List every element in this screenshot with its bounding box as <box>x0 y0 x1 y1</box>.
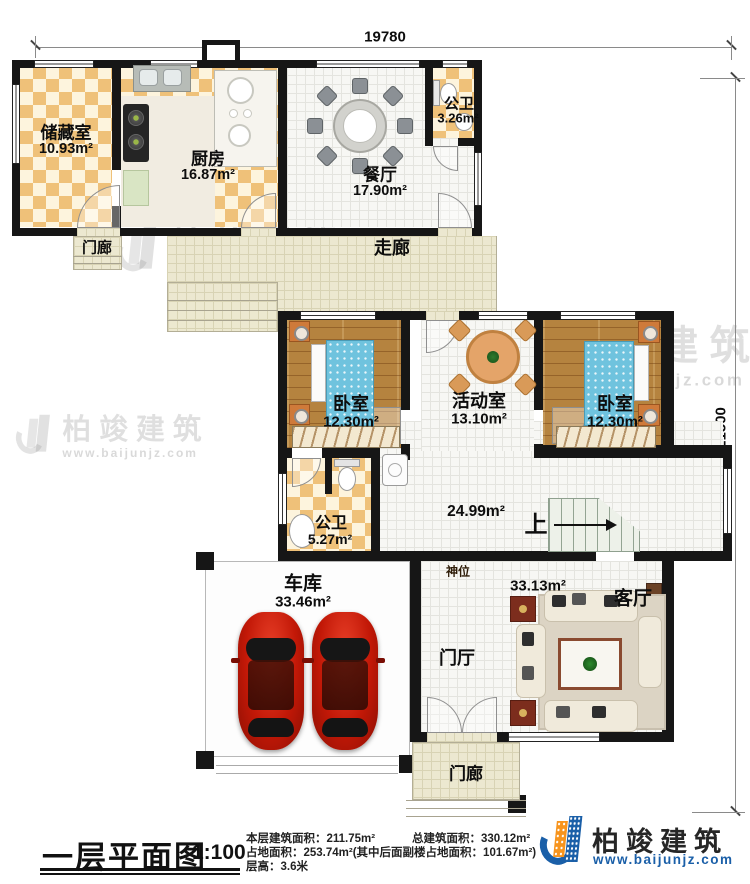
window <box>508 732 600 742</box>
wall <box>661 311 674 448</box>
kitchen-sink-bowl <box>163 69 182 86</box>
watermark: 柏竣建筑www.baijunjz.com <box>16 414 210 460</box>
wall <box>112 60 121 170</box>
porch-top-step <box>73 263 122 264</box>
room-label-bedroom-right: 卧室 <box>597 390 633 416</box>
window <box>442 60 468 68</box>
wall <box>278 448 292 458</box>
car-mirror <box>376 658 385 663</box>
wall <box>410 551 596 561</box>
porch-bottom-step <box>406 816 526 817</box>
porch-bottom-step <box>406 808 526 809</box>
kitchen-door-mat <box>123 170 149 206</box>
room-label-storage: 储藏室 <box>41 119 92 144</box>
door-opening <box>438 228 472 236</box>
dim-extension <box>700 78 745 79</box>
room-label-foyer: 门厅 <box>439 644 475 670</box>
wall <box>425 60 433 146</box>
car-windshield <box>246 638 296 662</box>
window <box>478 311 528 320</box>
island-basin <box>243 109 252 118</box>
room-label-bedroom-left: 卧室 <box>333 390 369 416</box>
room-area-hall: 24.99m² <box>447 503 505 521</box>
bed-pillows <box>634 345 649 401</box>
garage-apron-step <box>216 765 398 766</box>
room-area-bath-top: 3.26m² <box>437 111 478 126</box>
lamp <box>643 409 658 424</box>
wall <box>458 138 482 146</box>
dining-table-top <box>343 109 377 143</box>
window <box>316 60 420 68</box>
car-mirror <box>305 658 314 663</box>
corridor-steps-floor <box>167 282 278 332</box>
stove-burner <box>128 134 144 150</box>
stairs-up-label: 上 <box>525 505 548 539</box>
window <box>723 468 732 534</box>
window <box>34 60 94 68</box>
stairs-arrowhead <box>606 519 617 531</box>
car-windshield <box>320 638 370 662</box>
chimney <box>202 40 240 65</box>
end-table-ornament <box>519 709 527 717</box>
brand-site: www.baijunjz.com <box>593 852 734 867</box>
stat-storey-height: 层高：3.6米 <box>246 858 308 874</box>
watermark-logo-icon <box>16 414 53 460</box>
room-area-bedroom-right: 12.30m² <box>587 414 643 431</box>
window <box>560 311 636 320</box>
sofa-chaise <box>638 616 662 688</box>
stove-burner <box>128 110 144 126</box>
car <box>312 612 378 750</box>
room-label-porch-bottom: 门廊 <box>449 760 483 785</box>
wall <box>278 60 287 230</box>
title-underline <box>40 873 240 875</box>
sofa-cushion <box>592 706 606 718</box>
end-table-ornament <box>519 605 527 613</box>
brand-logo-icon <box>540 815 586 873</box>
door-opening <box>426 311 459 320</box>
room-area-living: 33.13m² <box>510 578 566 595</box>
wall <box>322 448 380 458</box>
wall <box>634 551 732 561</box>
window <box>278 473 287 525</box>
room-area-dining: 17.90m² <box>353 183 407 199</box>
dining-chair <box>352 78 368 94</box>
car-cabin <box>322 660 368 710</box>
door-opening <box>241 228 276 236</box>
top-dimension-label: 19780 <box>364 29 406 46</box>
toilet-bowl <box>338 467 356 491</box>
door-opening <box>77 228 120 236</box>
dim-extension <box>35 36 36 58</box>
top-dimension-line <box>35 47 732 48</box>
corridor-step <box>167 320 278 321</box>
plan-scale: 1:100 <box>192 841 246 865</box>
toilet <box>433 80 440 106</box>
island-basin <box>227 77 254 104</box>
room-label-porch-top: 门廊 <box>82 237 112 258</box>
dining-chair <box>397 118 413 134</box>
room-area-bath-mid: 5.27m² <box>308 531 352 547</box>
wall <box>534 311 543 410</box>
floor-plan: 19780 21500 柏竣建筑www.baijunjz.com 柏竣建筑www… <box>0 0 750 884</box>
room-area-bedroom-left: 12.30m² <box>323 414 379 431</box>
washing-machine-drum <box>388 463 402 477</box>
door-opening <box>427 732 497 742</box>
corridor-step <box>167 300 278 301</box>
lamp <box>294 326 309 341</box>
room-label-corridor: 走廊 <box>374 234 410 260</box>
column <box>196 552 214 570</box>
car-rear-window <box>248 718 294 737</box>
wall <box>474 60 482 236</box>
activity-table-plant <box>487 351 499 363</box>
sofa-cushion <box>572 593 586 605</box>
lamp <box>643 326 658 341</box>
wall <box>325 458 332 494</box>
title-underline <box>40 868 240 871</box>
window <box>474 152 482 206</box>
car-rear-window <box>322 718 368 737</box>
right-dimension-line <box>735 78 736 812</box>
dim-extension <box>731 36 732 60</box>
sofa-cushion <box>522 632 534 646</box>
room-label-activity: 活动室 <box>452 387 506 413</box>
room-label-garage: 车库 <box>284 569 322 596</box>
coffee-table-plant <box>583 657 597 671</box>
island-basin <box>228 124 251 147</box>
window <box>12 84 20 164</box>
room-area-storage: 10.93m² <box>39 141 93 157</box>
room-label-kitchen: 厨房 <box>191 145 225 170</box>
porch-bottom-step <box>406 800 526 801</box>
car <box>238 612 304 750</box>
bed-pillows <box>311 344 326 402</box>
wall <box>401 311 410 410</box>
island-basin <box>229 109 238 118</box>
room-area-kitchen: 16.87m² <box>181 167 235 183</box>
car-cabin <box>248 660 294 710</box>
room-label-dining: 餐厅 <box>363 161 397 186</box>
wall <box>425 138 433 146</box>
column <box>196 751 214 769</box>
sofa-cushion <box>556 706 570 718</box>
lamp <box>294 409 309 424</box>
garage-apron-step <box>216 773 398 774</box>
sofa-cushion <box>552 595 566 607</box>
room-label-bath-mid: 公卫 <box>315 509 347 533</box>
wall <box>410 561 421 742</box>
shrine-label: 神位 <box>446 563 470 580</box>
toilet <box>334 459 360 467</box>
window <box>300 311 376 320</box>
wall <box>371 458 380 551</box>
room-area-garage: 33.46m² <box>275 594 331 611</box>
kitchen-sink-bowl <box>139 69 158 86</box>
room-label-living: 客厅 <box>614 584 652 611</box>
sofa-cushion <box>522 666 534 680</box>
dim-extension <box>692 812 745 813</box>
stairs-arrow-line <box>554 524 606 526</box>
wall <box>278 551 410 561</box>
corridor-step <box>167 310 278 311</box>
car-mirror <box>231 658 240 663</box>
room-area-activity: 13.10m² <box>451 411 507 428</box>
dining-chair <box>307 118 323 134</box>
